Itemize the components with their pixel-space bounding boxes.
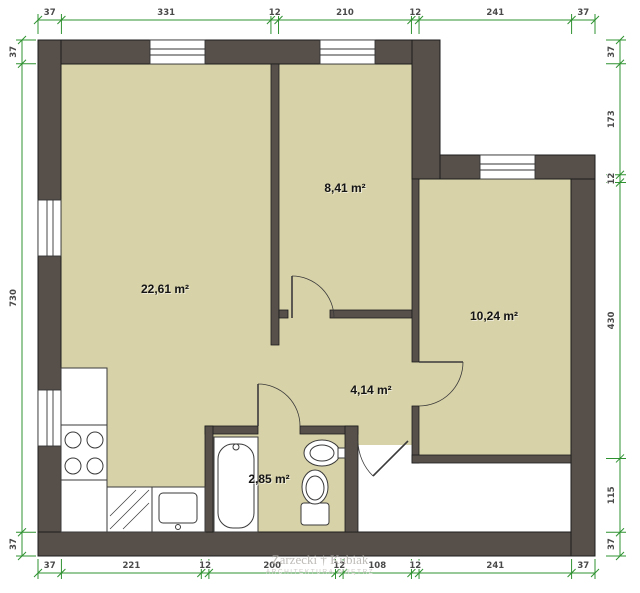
- dimension-label-top-5: 241: [486, 8, 504, 18]
- watermark-subtitle: ARCHITEKTURA WNĘTRZ: [266, 569, 374, 576]
- dimension-label-top-0: 37: [44, 8, 56, 18]
- dimension-label-left-0: 37: [9, 46, 19, 58]
- dimension-label-bottom-6: 12: [409, 561, 421, 571]
- dimension-label-left-2: 37: [9, 538, 19, 550]
- dimension-label-left-1: 730: [9, 289, 19, 307]
- room-area-label-hall: 4,14 m²: [350, 383, 391, 397]
- room-area-label-living: 22,61 m²: [141, 282, 189, 296]
- dimension-label-top-2: 12: [269, 8, 281, 18]
- dimension-label-bottom-7: 241: [486, 561, 504, 571]
- dimension-lines: 3733112210122413737221122001210812241373…: [0, 0, 640, 593]
- dimension-label-top-4: 12: [409, 8, 421, 18]
- dimension-label-right-5: 37: [607, 538, 617, 550]
- dimension-label-bottom-1: 221: [122, 561, 140, 571]
- dimension-label-top-3: 210: [336, 8, 354, 18]
- dimension-label-right-2: 12: [607, 173, 617, 185]
- dimension-label-top-6: 37: [577, 8, 589, 18]
- room-area-label-841: 8,41 m²: [324, 181, 365, 195]
- dimension-label-right-3: 430: [607, 312, 617, 330]
- dimension-label-bottom-0: 37: [44, 561, 56, 571]
- dimension-label-bottom-2: 12: [199, 561, 211, 571]
- floor-plan-canvas: 3733112210122413737221122001210812241373…: [0, 0, 640, 593]
- dimension-label-bottom-8: 37: [577, 561, 589, 571]
- watermark-studio-name: Zarzecki † Kubiak: [272, 552, 369, 568]
- dimension-label-right-1: 173: [607, 110, 617, 128]
- dimension-label-right-0: 37: [607, 46, 617, 58]
- room-area-label-1024: 10,24 m²: [470, 309, 518, 323]
- room-area-label-bath: 2,85 m²: [248, 472, 289, 486]
- dimension-label-top-1: 331: [157, 8, 175, 18]
- dimension-label-right-4: 115: [607, 486, 617, 504]
